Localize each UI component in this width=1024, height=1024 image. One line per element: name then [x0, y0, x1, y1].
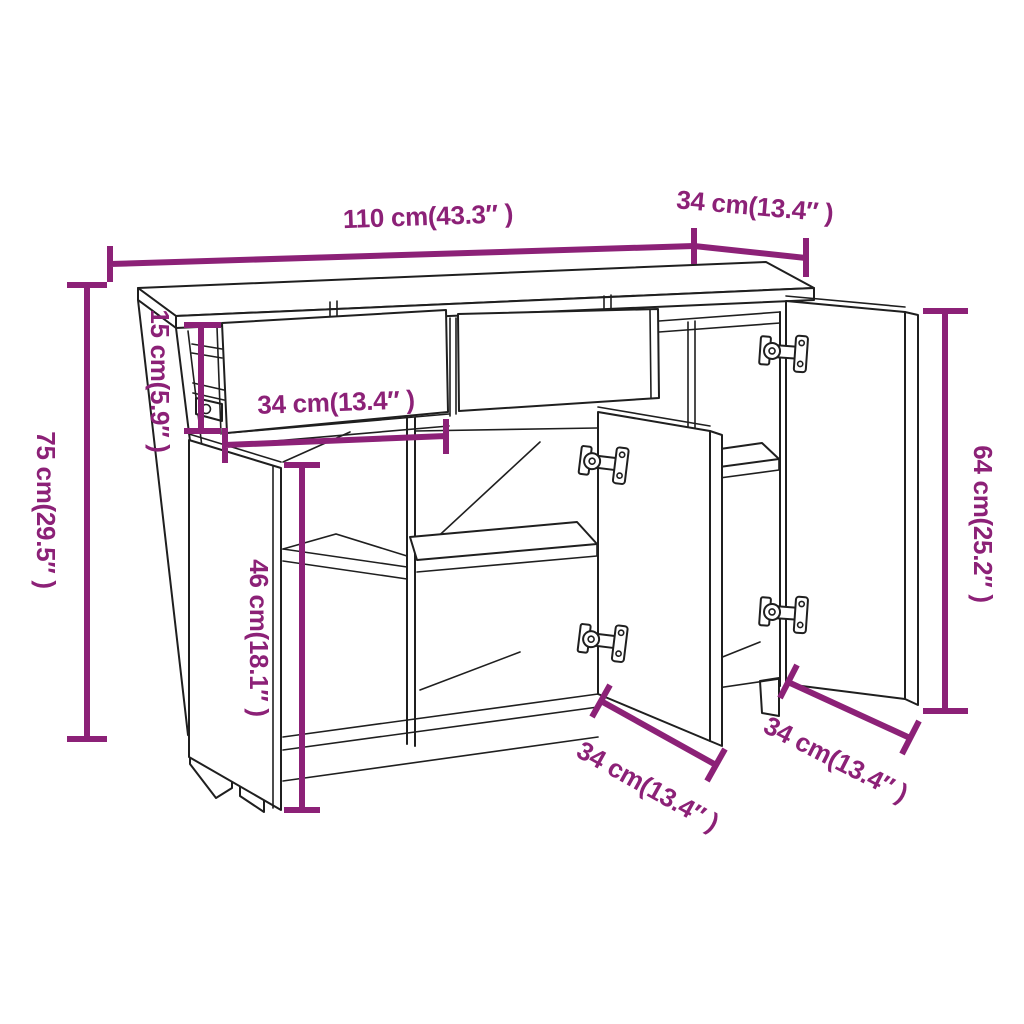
dimension-label: 75 cm(29.5″ ) — [31, 431, 61, 588]
middle-compartment — [410, 428, 597, 690]
dimension-label: 34 cm(13.4″ ) — [572, 735, 724, 838]
dimension-label: 110 cm(43.3″ ) — [342, 198, 513, 234]
dimension-label: 46 cm(18.1″ ) — [244, 559, 274, 716]
sideboard-dimension-diagram: 110 cm(43.3″ ) 34 cm(13.4″ ) 75 cm(29.5″… — [0, 0, 1024, 1024]
dimension-label: 15 cm(5.9″ ) — [145, 309, 175, 452]
dimension-label: 64 cm(25.2″ ) — [968, 445, 998, 602]
dimension-overall-height: 75 cm(29.5″ ) — [31, 285, 107, 739]
dimension-label: 34 cm(13.4″ ) — [759, 710, 913, 808]
dimension-label: 34 cm(13.4″ ) — [257, 384, 415, 419]
diagram-canvas: 110 cm(43.3″ ) 34 cm(13.4″ ) 75 cm(29.5″… — [0, 0, 1024, 1024]
middle-drawer-front — [458, 309, 659, 411]
dimension-label: 34 cm(13.4″ ) — [675, 184, 834, 228]
hinge-icon — [759, 333, 808, 372]
right-foot — [760, 678, 779, 716]
dimension-right-door-height: 64 cm(25.2″ ) — [923, 311, 998, 711]
hinge-icon — [759, 594, 808, 633]
